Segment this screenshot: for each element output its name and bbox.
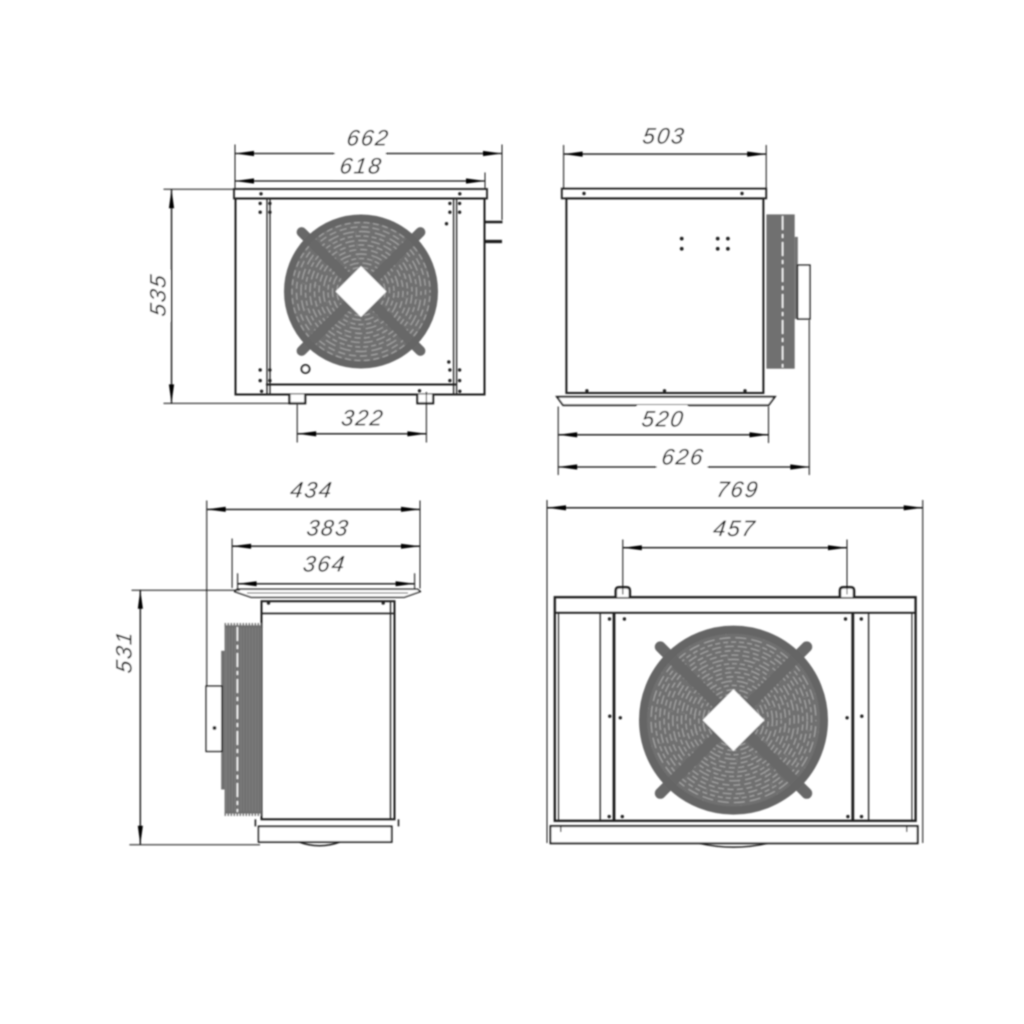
svg-text:662: 662 — [345, 125, 391, 150]
svg-text:457: 457 — [712, 516, 758, 541]
svg-text:322: 322 — [340, 405, 386, 430]
svg-text:531: 531 — [112, 628, 137, 674]
svg-text:503: 503 — [641, 124, 687, 149]
svg-text:434: 434 — [289, 478, 335, 503]
svg-text:364: 364 — [302, 552, 348, 577]
svg-text:618: 618 — [338, 153, 384, 178]
svg-text:520: 520 — [640, 407, 686, 432]
svg-text:535: 535 — [145, 272, 170, 318]
svg-text:769: 769 — [715, 477, 761, 502]
svg-text:383: 383 — [305, 516, 351, 541]
svg-text:626: 626 — [660, 445, 706, 470]
